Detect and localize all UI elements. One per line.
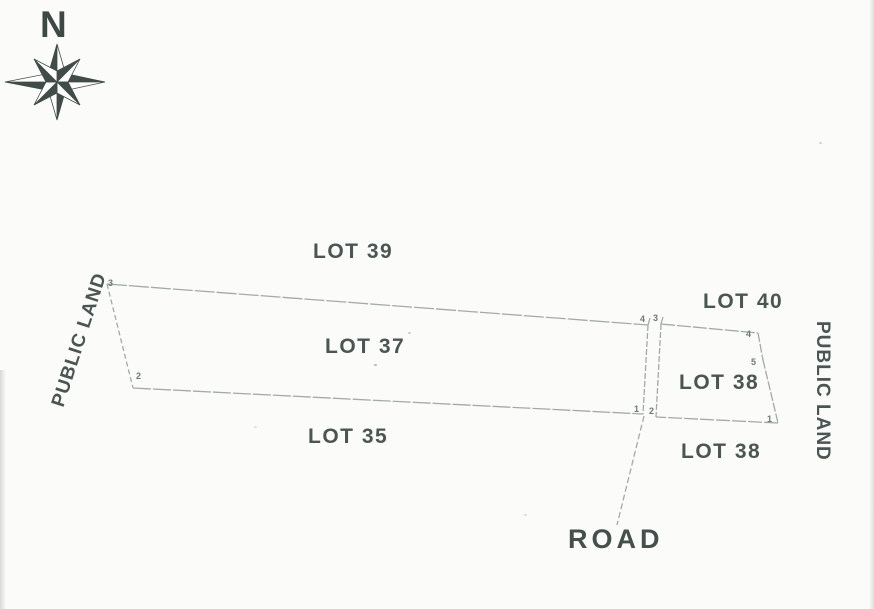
road-line — [617, 416, 644, 525]
public-land-right-label: PUBLIC LAND — [811, 321, 833, 451]
lot37-boundary-bottom — [133, 388, 643, 414]
corner-marker: 5 — [751, 358, 756, 367]
lot37-boundary-right — [643, 325, 648, 414]
lot37-boundary-top — [107, 284, 648, 325]
compass-rose-icon — [5, 44, 105, 120]
lot38-lower-label: LOT 38 — [681, 440, 761, 464]
plat-sketch-page: N LOT 39 LOT 37 LOT 35 LOT 40 LOT 38 LOT… — [0, 0, 874, 609]
compass-north-label: N — [40, 4, 67, 46]
corner-marker: 1 — [634, 405, 639, 414]
lot35-label: LOT 35 — [308, 425, 388, 449]
corner-tick-strip-right — [661, 317, 663, 324]
scan-specks — [374, 364, 377, 366]
lot37-boundary-left — [107, 284, 133, 388]
corner-marker: 1 — [767, 415, 772, 424]
scan-edge-smudge — [869, 0, 874, 609]
scan-edge-smudge — [0, 370, 6, 609]
corner-tick-strip-left — [648, 318, 650, 325]
corner-marker: 2 — [649, 407, 654, 416]
lot40-label: LOT 40 — [703, 290, 783, 314]
corner-marker: 4 — [640, 315, 645, 324]
corner-marker: 4 — [746, 330, 751, 339]
corner-marker: 2 — [136, 372, 141, 381]
lot38-boundary-top — [661, 324, 758, 333]
lot38-boundary-northeast — [758, 333, 763, 360]
lot37-label: LOT 37 — [325, 335, 405, 359]
lot38-boundary-left — [656, 324, 661, 417]
lot38-boundary-bottom — [656, 417, 778, 423]
corner-marker: 3 — [108, 279, 113, 288]
corner-marker: 3 — [653, 314, 658, 323]
road-label: ROAD — [568, 524, 664, 555]
lot38-inner-label: LOT 38 — [679, 371, 759, 395]
lot39-label: LOT 39 — [313, 240, 393, 264]
